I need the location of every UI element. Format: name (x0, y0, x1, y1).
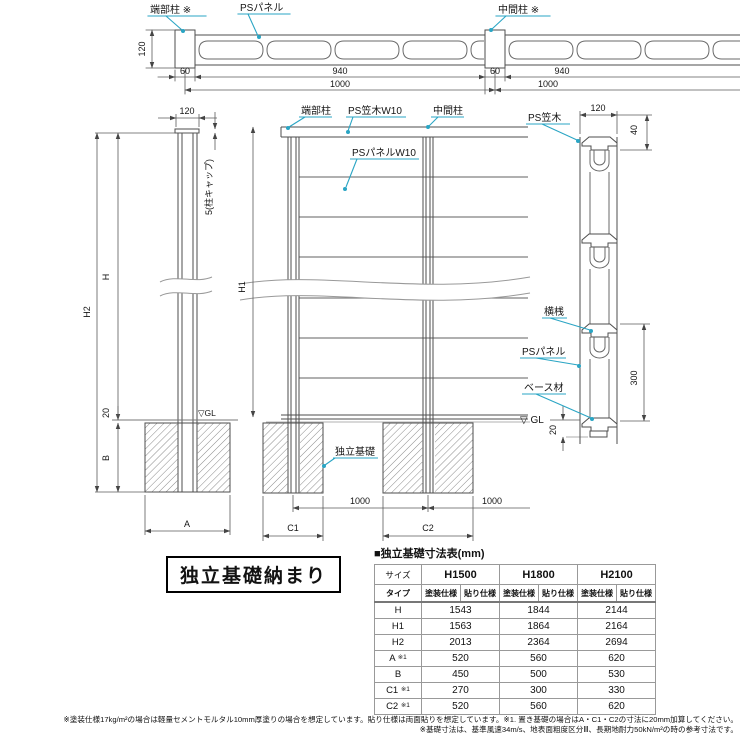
table-cell: A ※1 (375, 651, 422, 667)
section-rail-profile-2 (582, 324, 617, 337)
front-rails (299, 177, 528, 378)
section-gl-label: ▽ GL (520, 415, 544, 426)
table-cell: 620 (578, 699, 656, 715)
front-dim-1000-b: 1000 (482, 496, 502, 506)
section-rail-label: 横桟 (544, 305, 564, 318)
table-cell: 520 (422, 699, 500, 715)
plan-dim-1000-right: 1000 (538, 79, 558, 89)
section-rail-profile-1 (582, 234, 617, 247)
table-cell: C1 ※1 (375, 683, 422, 699)
plan-mid-post (485, 30, 505, 68)
table-cell: 塗装仕様 (422, 585, 461, 603)
table-cell: 450 (422, 667, 500, 683)
fence-installation-drawing: 120 60 940 1000 60 940 1000 端部柱 ※ PSパネル … (0, 0, 740, 740)
table-cell: C2 ※1 (375, 699, 422, 715)
side-dim-120: 120 (179, 106, 194, 116)
front-end-post (288, 137, 299, 493)
table-cell: 530 (578, 667, 656, 683)
front-cap-label: PS笠木W10 (348, 104, 402, 117)
front-mid-post (423, 137, 433, 493)
front-foundation-label: 独立基礎 (335, 445, 375, 458)
table-row: A ※1 520 560 620 (375, 651, 656, 667)
technical-drawing: 120 60 940 1000 60 940 1000 端部柱 ※ PSパネル … (0, 0, 740, 545)
side-dim-h2: H2 (82, 306, 92, 318)
section-base-profile (582, 418, 617, 431)
detail-title-box: 独立基礎納まり (166, 556, 341, 593)
front-dim-c2: C2 (422, 523, 434, 533)
section-panel-label: PSパネル (522, 346, 565, 358)
side-dim-20: 20 (101, 408, 111, 418)
plan-dim-940-left: 940 (332, 66, 347, 76)
leader-dot (257, 35, 261, 39)
plan-view: 120 60 940 1000 60 940 1000 端部柱 ※ PSパネル … (137, 2, 740, 94)
section-dim-300: 300 (629, 370, 639, 385)
table-cell: 2013 (422, 635, 500, 651)
dimension-table-section: ■独立基礎寸法表(mm) サイズ H1500 H1800 H2100 タイプ 塗… (374, 545, 656, 715)
side-gl-label: ▽GL (198, 408, 216, 418)
section-cap-label: PS笠木 (528, 111, 561, 124)
plan-dim-1000-left: 1000 (330, 79, 350, 89)
table-cell: 貼り仕様 (461, 585, 500, 603)
section-dimensions (550, 111, 652, 451)
front-dim-c1: C1 (287, 523, 299, 533)
table-row: H1 1563 1864 2164 (375, 619, 656, 635)
plan-end-post-label: 端部柱 ※ (150, 3, 191, 16)
section-dim-120: 120 (590, 103, 605, 113)
table-row: H 1543 1844 2144 (375, 602, 656, 619)
table-cell: 300 (500, 683, 578, 699)
side-dim-b: B (101, 455, 111, 461)
plan-dim-60-left: 60 (180, 66, 190, 76)
table-cell: H1800 (500, 565, 578, 585)
front-elevation: H1 1000 1000 C1 C2 端部柱 PS笠木W10 中間柱 PSパネル… (237, 104, 530, 541)
table-cell: 330 (578, 683, 656, 699)
table-cell: 2364 (500, 635, 578, 651)
table-cell: 1543 (422, 602, 500, 619)
plan-end-post (175, 30, 195, 68)
plan-mid-post-label: 中間柱 ※ (498, 3, 539, 16)
table-row: C2 ※1 520 560 620 (375, 699, 656, 715)
table-cell: 560 (500, 651, 578, 667)
side-post (178, 133, 197, 492)
section-base-label: ベース材 (524, 381, 564, 394)
plan-dim-120: 120 (137, 41, 147, 56)
section-view: 120 40 300 20 ▽ GL PS笠木 横桟 PSパネル ベース材 (520, 103, 652, 451)
plan-dim-940-right: 940 (554, 66, 569, 76)
table-cell: H1 (375, 619, 422, 635)
table-row: C1 ※1 270 300 330 (375, 683, 656, 699)
table-cell: タイプ (375, 585, 422, 603)
footnote-2: ※基礎寸法は、基準風速34m/s、地表面粗度区分Ⅲ、長期地耐力50kN/m²の時… (420, 724, 738, 735)
front-dim-1000-a: 1000 (350, 496, 370, 506)
table-cell: 塗装仕様 (500, 585, 539, 603)
table-cell: 270 (422, 683, 500, 699)
table-cell: B (375, 667, 422, 683)
foundation-dimension-table: サイズ H1500 H1800 H2100 タイプ 塗装仕様 貼り仕様 塗装仕様… (374, 564, 656, 715)
front-panel-label: PSパネルW10 (352, 147, 416, 159)
table-cell: 1563 (422, 619, 500, 635)
table-cell: 2144 (578, 602, 656, 619)
table-row: B 450 500 530 (375, 667, 656, 683)
side-cap-dim-label: 5(柱キャップ) (203, 159, 214, 215)
table-cell: 1864 (500, 619, 578, 635)
table-cell: 500 (500, 667, 578, 683)
leader-dot (489, 28, 493, 32)
table-cell: 560 (500, 699, 578, 715)
front-mid-post-label: 中間柱 (433, 104, 463, 117)
table-cell: 貼り仕様 (539, 585, 578, 603)
table-header-row-size: サイズ H1500 H1800 H2100 (375, 565, 656, 585)
table-cell: 620 (578, 651, 656, 667)
table-cell: H2100 (578, 565, 656, 585)
table-cell: 1844 (500, 602, 578, 619)
side-dim-a: A (184, 519, 190, 529)
table-cell: 塗装仕様 (578, 585, 617, 603)
table-cell: サイズ (375, 565, 422, 585)
side-dim-h: H (101, 274, 111, 281)
plan-panel-blocks-right (509, 41, 740, 59)
front-end-post-label: 端部柱 (301, 104, 331, 117)
table-cell: H (375, 602, 422, 619)
front-dim-h1: H1 (237, 281, 247, 293)
side-elevation: 120 5(柱キャップ) H H2 20 B A ▽GL (82, 106, 238, 535)
table-title: ■独立基礎寸法表(mm) (374, 545, 656, 561)
section-dim-20: 20 (548, 425, 558, 435)
detail-title-text: 独立基礎納まり (180, 566, 327, 587)
side-post-cap (175, 129, 199, 133)
plan-panel-label: PSパネル (240, 2, 283, 14)
table-cell: 2164 (578, 619, 656, 635)
table-cell: 貼り仕様 (617, 585, 656, 603)
section-cap-profile (582, 137, 617, 150)
table-cell: H2 (375, 635, 422, 651)
section-dim-40: 40 (629, 125, 639, 135)
plan-dim-60-right: 60 (490, 66, 500, 76)
table-cell: 520 (422, 651, 500, 667)
table-cell: H1500 (422, 565, 500, 585)
table-row: H2 2013 2364 2694 (375, 635, 656, 651)
table-header-row-type: タイプ 塗装仕様 貼り仕様 塗装仕様 貼り仕様 塗装仕様 貼り仕様 (375, 585, 656, 603)
plan-dimensions (146, 30, 740, 94)
table-cell: 2694 (578, 635, 656, 651)
leader-dot (181, 29, 185, 33)
